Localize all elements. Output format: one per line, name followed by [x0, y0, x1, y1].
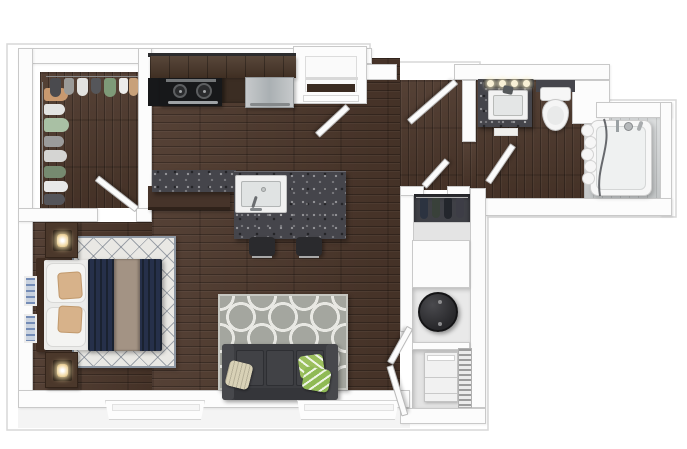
glass-screen-curve	[0, 0, 687, 449]
floorplan-canvas	[0, 0, 687, 449]
shower-head	[624, 122, 633, 131]
shower-arm	[616, 120, 619, 132]
